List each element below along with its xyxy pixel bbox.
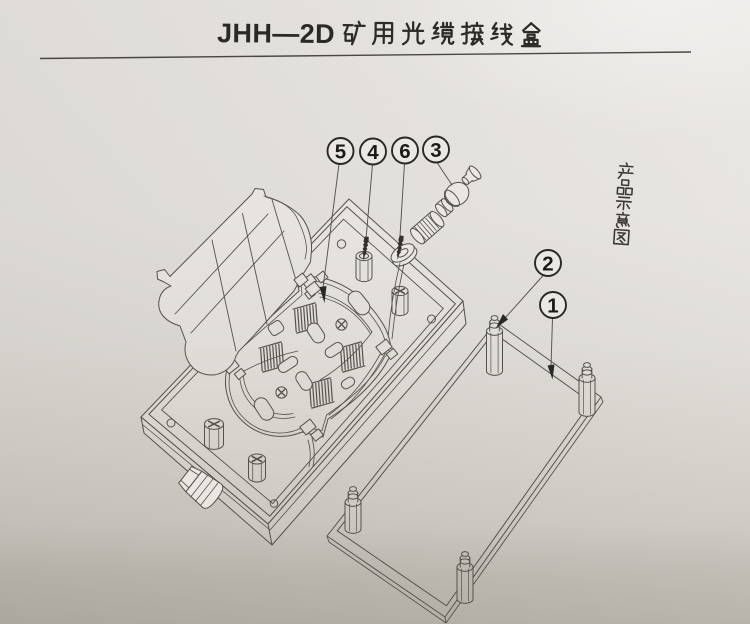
svg-text:4: 4 <box>367 141 379 164</box>
svg-text:5: 5 <box>335 140 346 163</box>
svg-text:1: 1 <box>547 294 558 317</box>
svg-text:JHH—2D: JHH—2D <box>217 18 335 49</box>
svg-text:3: 3 <box>430 139 441 162</box>
svg-text:2: 2 <box>542 252 553 275</box>
svg-text:6: 6 <box>399 140 410 163</box>
